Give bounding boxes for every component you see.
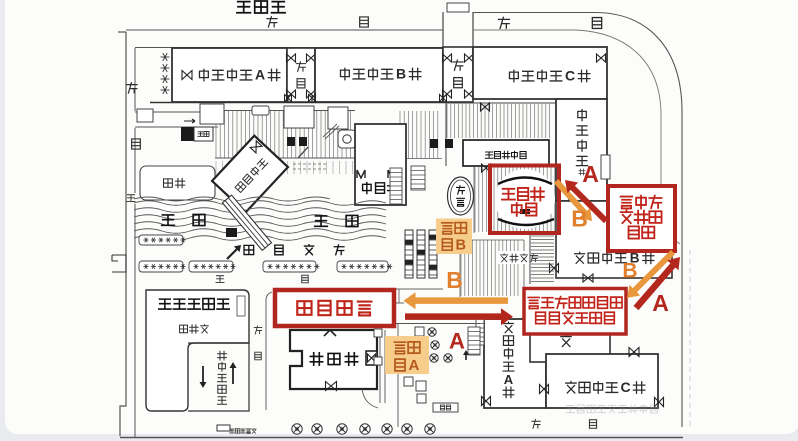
svg-text:A: A — [652, 290, 669, 316]
svg-text:C: C — [565, 68, 575, 84]
svg-text:A: A — [504, 372, 514, 387]
svg-text:A: A — [582, 161, 599, 187]
svg-text:A: A — [255, 67, 265, 83]
svg-text:B: B — [571, 206, 588, 232]
svg-text:C: C — [620, 379, 630, 395]
svg-text:A: A — [449, 329, 465, 354]
svg-text:B: B — [622, 260, 637, 283]
svg-text:B: B — [446, 267, 463, 293]
svg-text:A: A — [409, 357, 420, 374]
svg-text:B: B — [396, 66, 406, 82]
svg-text:B: B — [456, 237, 467, 253]
